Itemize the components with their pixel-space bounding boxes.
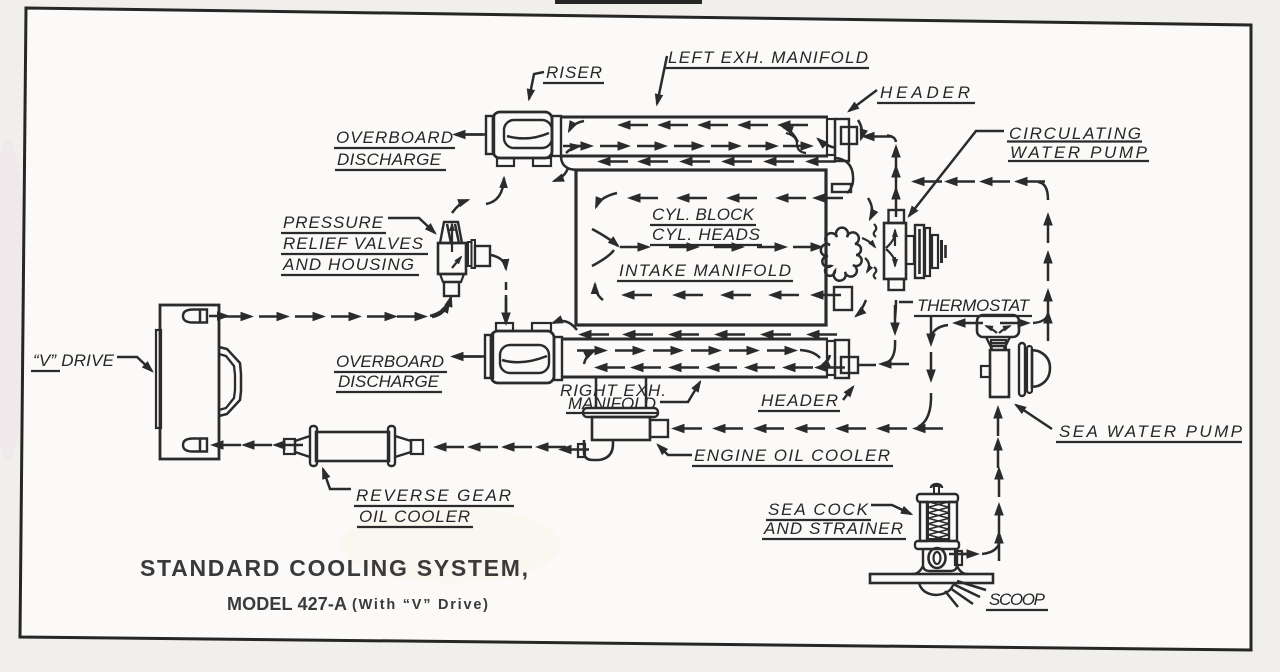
svg-text:CYL. BLOCK: CYL. BLOCK [652,205,755,224]
svg-text:WATER PUMP: WATER PUMP [1010,143,1148,162]
svg-text:SEA WATER PUMP: SEA WATER PUMP [1059,422,1243,441]
svg-text:INTAKE MANIFOLD: INTAKE MANIFOLD [619,261,791,280]
svg-text:REVERSE GEAR: REVERSE GEAR [356,486,511,505]
svg-text:OVERBOARD: OVERBOARD [336,352,444,371]
svg-text:AND HOUSING: AND HOUSING [282,255,414,274]
svg-text:OIL COOLER: OIL COOLER [359,507,470,526]
svg-text:MODEL 427-A: MODEL 427-A [227,594,347,614]
svg-text:PRESSURE: PRESSURE [283,213,384,232]
svg-text:ENGINE OIL COOLER: ENGINE OIL COOLER [694,446,890,465]
svg-text:STANDARD COOLING SYSTEM,: STANDARD COOLING SYSTEM, [140,555,528,581]
svg-text:CIRCULATING: CIRCULATING [1009,124,1141,143]
svg-text:HEADER: HEADER [761,391,838,410]
svg-text:MANIFOLD: MANIFOLD [568,394,656,413]
svg-text:OVERBOARD: OVERBOARD [336,128,453,147]
svg-text:LEFT EXH. MANIFOLD: LEFT EXH. MANIFOLD [668,48,868,67]
svg-text:RISER: RISER [546,63,602,82]
svg-text:AND STRAINER: AND STRAINER [763,519,903,538]
svg-text:“V” DRIVE: “V” DRIVE [33,351,115,370]
svg-text:SCOOP: SCOOP [989,590,1046,609]
svg-text:DISCHARGE: DISCHARGE [338,372,440,391]
svg-text:SEA COCK: SEA COCK [768,500,869,519]
svg-text:CYL. HEADS: CYL. HEADS [652,225,761,244]
svg-text:DISCHARGE: DISCHARGE [337,150,442,169]
svg-text:THERMOSTAT: THERMOSTAT [917,296,1031,315]
svg-text:RELIEF VALVES: RELIEF VALVES [283,234,424,253]
